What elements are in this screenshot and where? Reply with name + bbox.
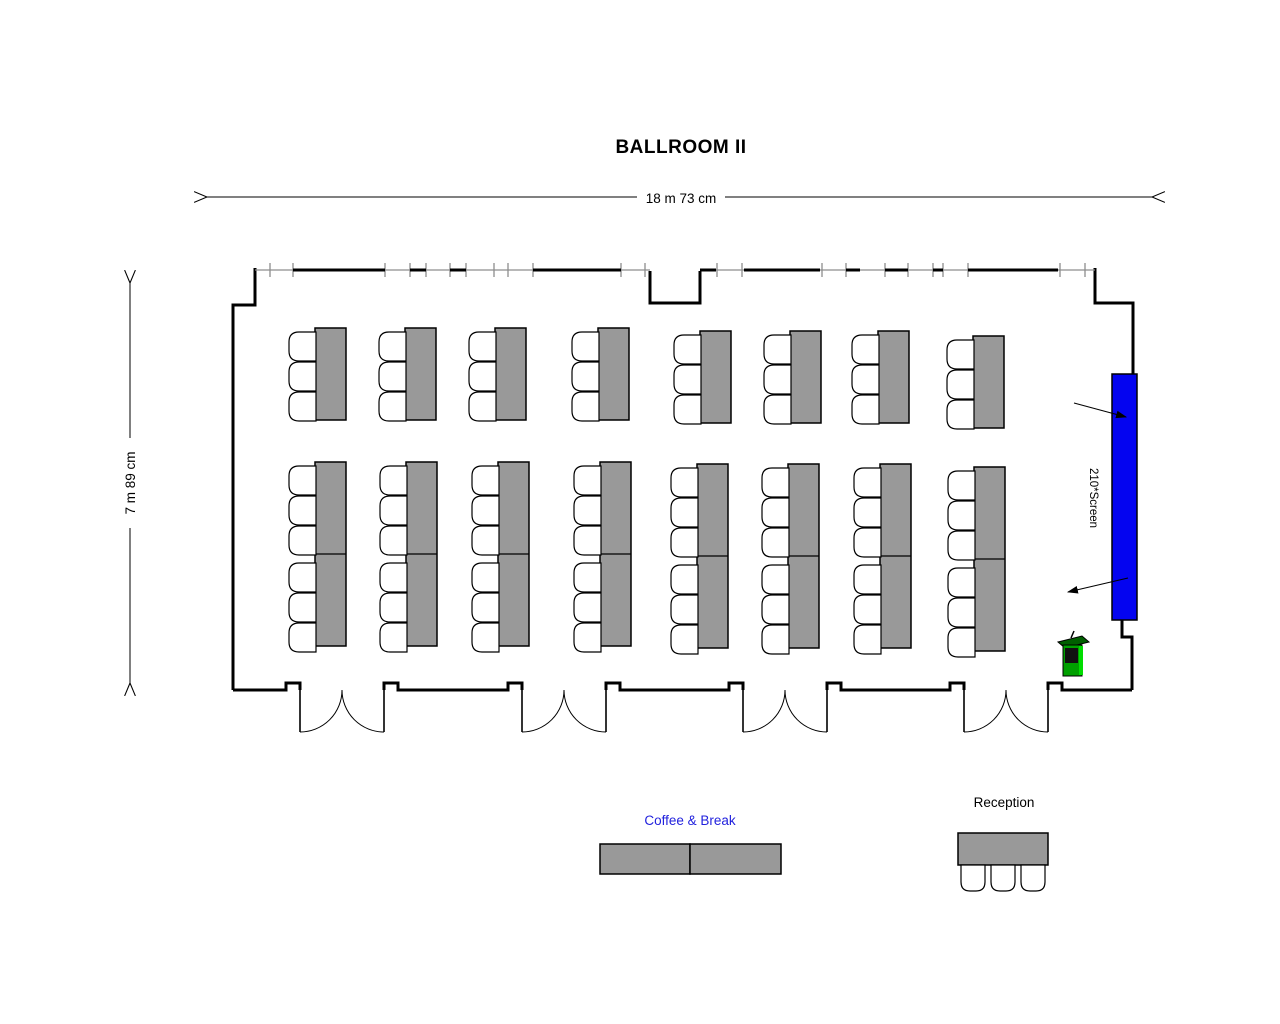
height-dimension-label: 7 m 89 cm (123, 451, 138, 514)
chair (289, 332, 316, 361)
chair (572, 332, 599, 361)
chair (472, 623, 499, 652)
ballroom-floorplan: BALLROOM II 18 m 73 cm 7 m 89 cm 210*Scr… (0, 0, 1280, 1024)
banquet-table (700, 331, 731, 423)
chair (289, 362, 316, 391)
chair (762, 528, 789, 557)
chair (574, 593, 601, 622)
screen-label: 210*Screen (1087, 468, 1099, 528)
podium-panel (1065, 648, 1078, 663)
chair (764, 365, 791, 394)
chair (289, 496, 316, 525)
chair (379, 362, 406, 391)
coffee-break-label: Coffee & Break (644, 813, 736, 828)
chair (574, 526, 601, 555)
chair (469, 332, 496, 361)
top-row-tables (289, 328, 1004, 429)
chair (472, 496, 499, 525)
double-door (300, 690, 384, 732)
podium-edge-highlight (1079, 646, 1083, 675)
width-dimension-label: 18 m 73 cm (646, 191, 717, 206)
chair (380, 593, 407, 622)
chair (947, 370, 974, 399)
chair (674, 335, 701, 364)
wall-bottom (233, 683, 1132, 690)
podium-mic-icon (1071, 631, 1074, 638)
banquet-table (405, 328, 436, 420)
chair (762, 468, 789, 497)
double-door (964, 690, 1048, 732)
double-door (522, 690, 606, 732)
chair (289, 623, 316, 652)
chair (764, 395, 791, 424)
wall-top-notch (650, 271, 700, 303)
chair (289, 392, 316, 421)
banquet-table (598, 328, 629, 420)
chair (948, 531, 975, 560)
projection-screen (1112, 374, 1137, 620)
chair (948, 501, 975, 530)
chair (947, 340, 974, 369)
chair (289, 593, 316, 622)
chair (574, 563, 601, 592)
chair (762, 498, 789, 527)
chair (762, 625, 789, 654)
chair (852, 365, 879, 394)
chair (289, 466, 316, 495)
coffee-table-segment (600, 844, 690, 874)
coffee-break-tables (600, 844, 781, 874)
door-swing-arc-right (564, 690, 606, 732)
chair (948, 598, 975, 627)
chair (854, 528, 881, 557)
chair (380, 623, 407, 652)
chair (671, 565, 698, 594)
podium (1058, 631, 1089, 676)
wall-right-lower (1122, 619, 1132, 690)
chair (764, 335, 791, 364)
banquet-table (878, 331, 909, 423)
chair (854, 595, 881, 624)
chair (572, 362, 599, 391)
reception-chairs (961, 865, 1045, 891)
door-swing-arc-left (522, 690, 564, 732)
chair (762, 595, 789, 624)
chair (852, 335, 879, 364)
chair (289, 563, 316, 592)
banquet-table (315, 328, 346, 420)
chair (469, 392, 496, 421)
door-swing-arc-left (964, 690, 1006, 732)
width-dimension: 18 m 73 cm (207, 189, 1152, 206)
reception-area: Reception (958, 795, 1048, 891)
chair (961, 865, 985, 891)
middle-row-tables (289, 462, 1005, 657)
chair (472, 526, 499, 555)
chair (854, 625, 881, 654)
chair (379, 392, 406, 421)
chair (671, 528, 698, 557)
chair (380, 563, 407, 592)
chair (947, 400, 974, 429)
chair (671, 468, 698, 497)
chair (671, 595, 698, 624)
banquet-table (973, 336, 1004, 428)
door-swing-arc-right (342, 690, 384, 732)
chair (472, 466, 499, 495)
chair (574, 623, 601, 652)
entry-doors (300, 690, 1048, 732)
reception-label: Reception (974, 795, 1035, 810)
banquet-table (495, 328, 526, 420)
page-title: BALLROOM II (615, 137, 746, 158)
chair (572, 392, 599, 421)
coffee-table-segment (690, 844, 781, 874)
door-swing-arc-right (785, 690, 827, 732)
chair (574, 466, 601, 495)
coffee-break-area: Coffee & Break (600, 813, 781, 874)
wall-right-upper (1095, 268, 1133, 376)
door-swing-arc-left (743, 690, 785, 732)
chair (854, 468, 881, 497)
height-dimension: 7 m 89 cm (121, 283, 139, 683)
chair (379, 332, 406, 361)
chair (762, 565, 789, 594)
window-band (255, 263, 1095, 277)
chair (472, 593, 499, 622)
double-door (743, 690, 827, 732)
chair (380, 496, 407, 525)
reception-table (958, 833, 1048, 865)
chair (671, 625, 698, 654)
chair (1021, 865, 1045, 891)
door-swing-arc-right (1006, 690, 1048, 732)
door-swing-arc-left (300, 690, 342, 732)
chair (574, 496, 601, 525)
chair (674, 395, 701, 424)
projection-screen-group: 210*Screen (1068, 374, 1137, 620)
chair (852, 395, 879, 424)
chair (380, 526, 407, 555)
chair (674, 365, 701, 394)
chair (991, 865, 1015, 891)
chair (289, 526, 316, 555)
wall-left (233, 268, 255, 690)
chair (469, 362, 496, 391)
chair (948, 628, 975, 657)
chair (671, 498, 698, 527)
chair (380, 466, 407, 495)
chair (854, 498, 881, 527)
chair (948, 471, 975, 500)
chair (854, 565, 881, 594)
chair (472, 563, 499, 592)
banquet-table (790, 331, 821, 423)
chair (948, 568, 975, 597)
